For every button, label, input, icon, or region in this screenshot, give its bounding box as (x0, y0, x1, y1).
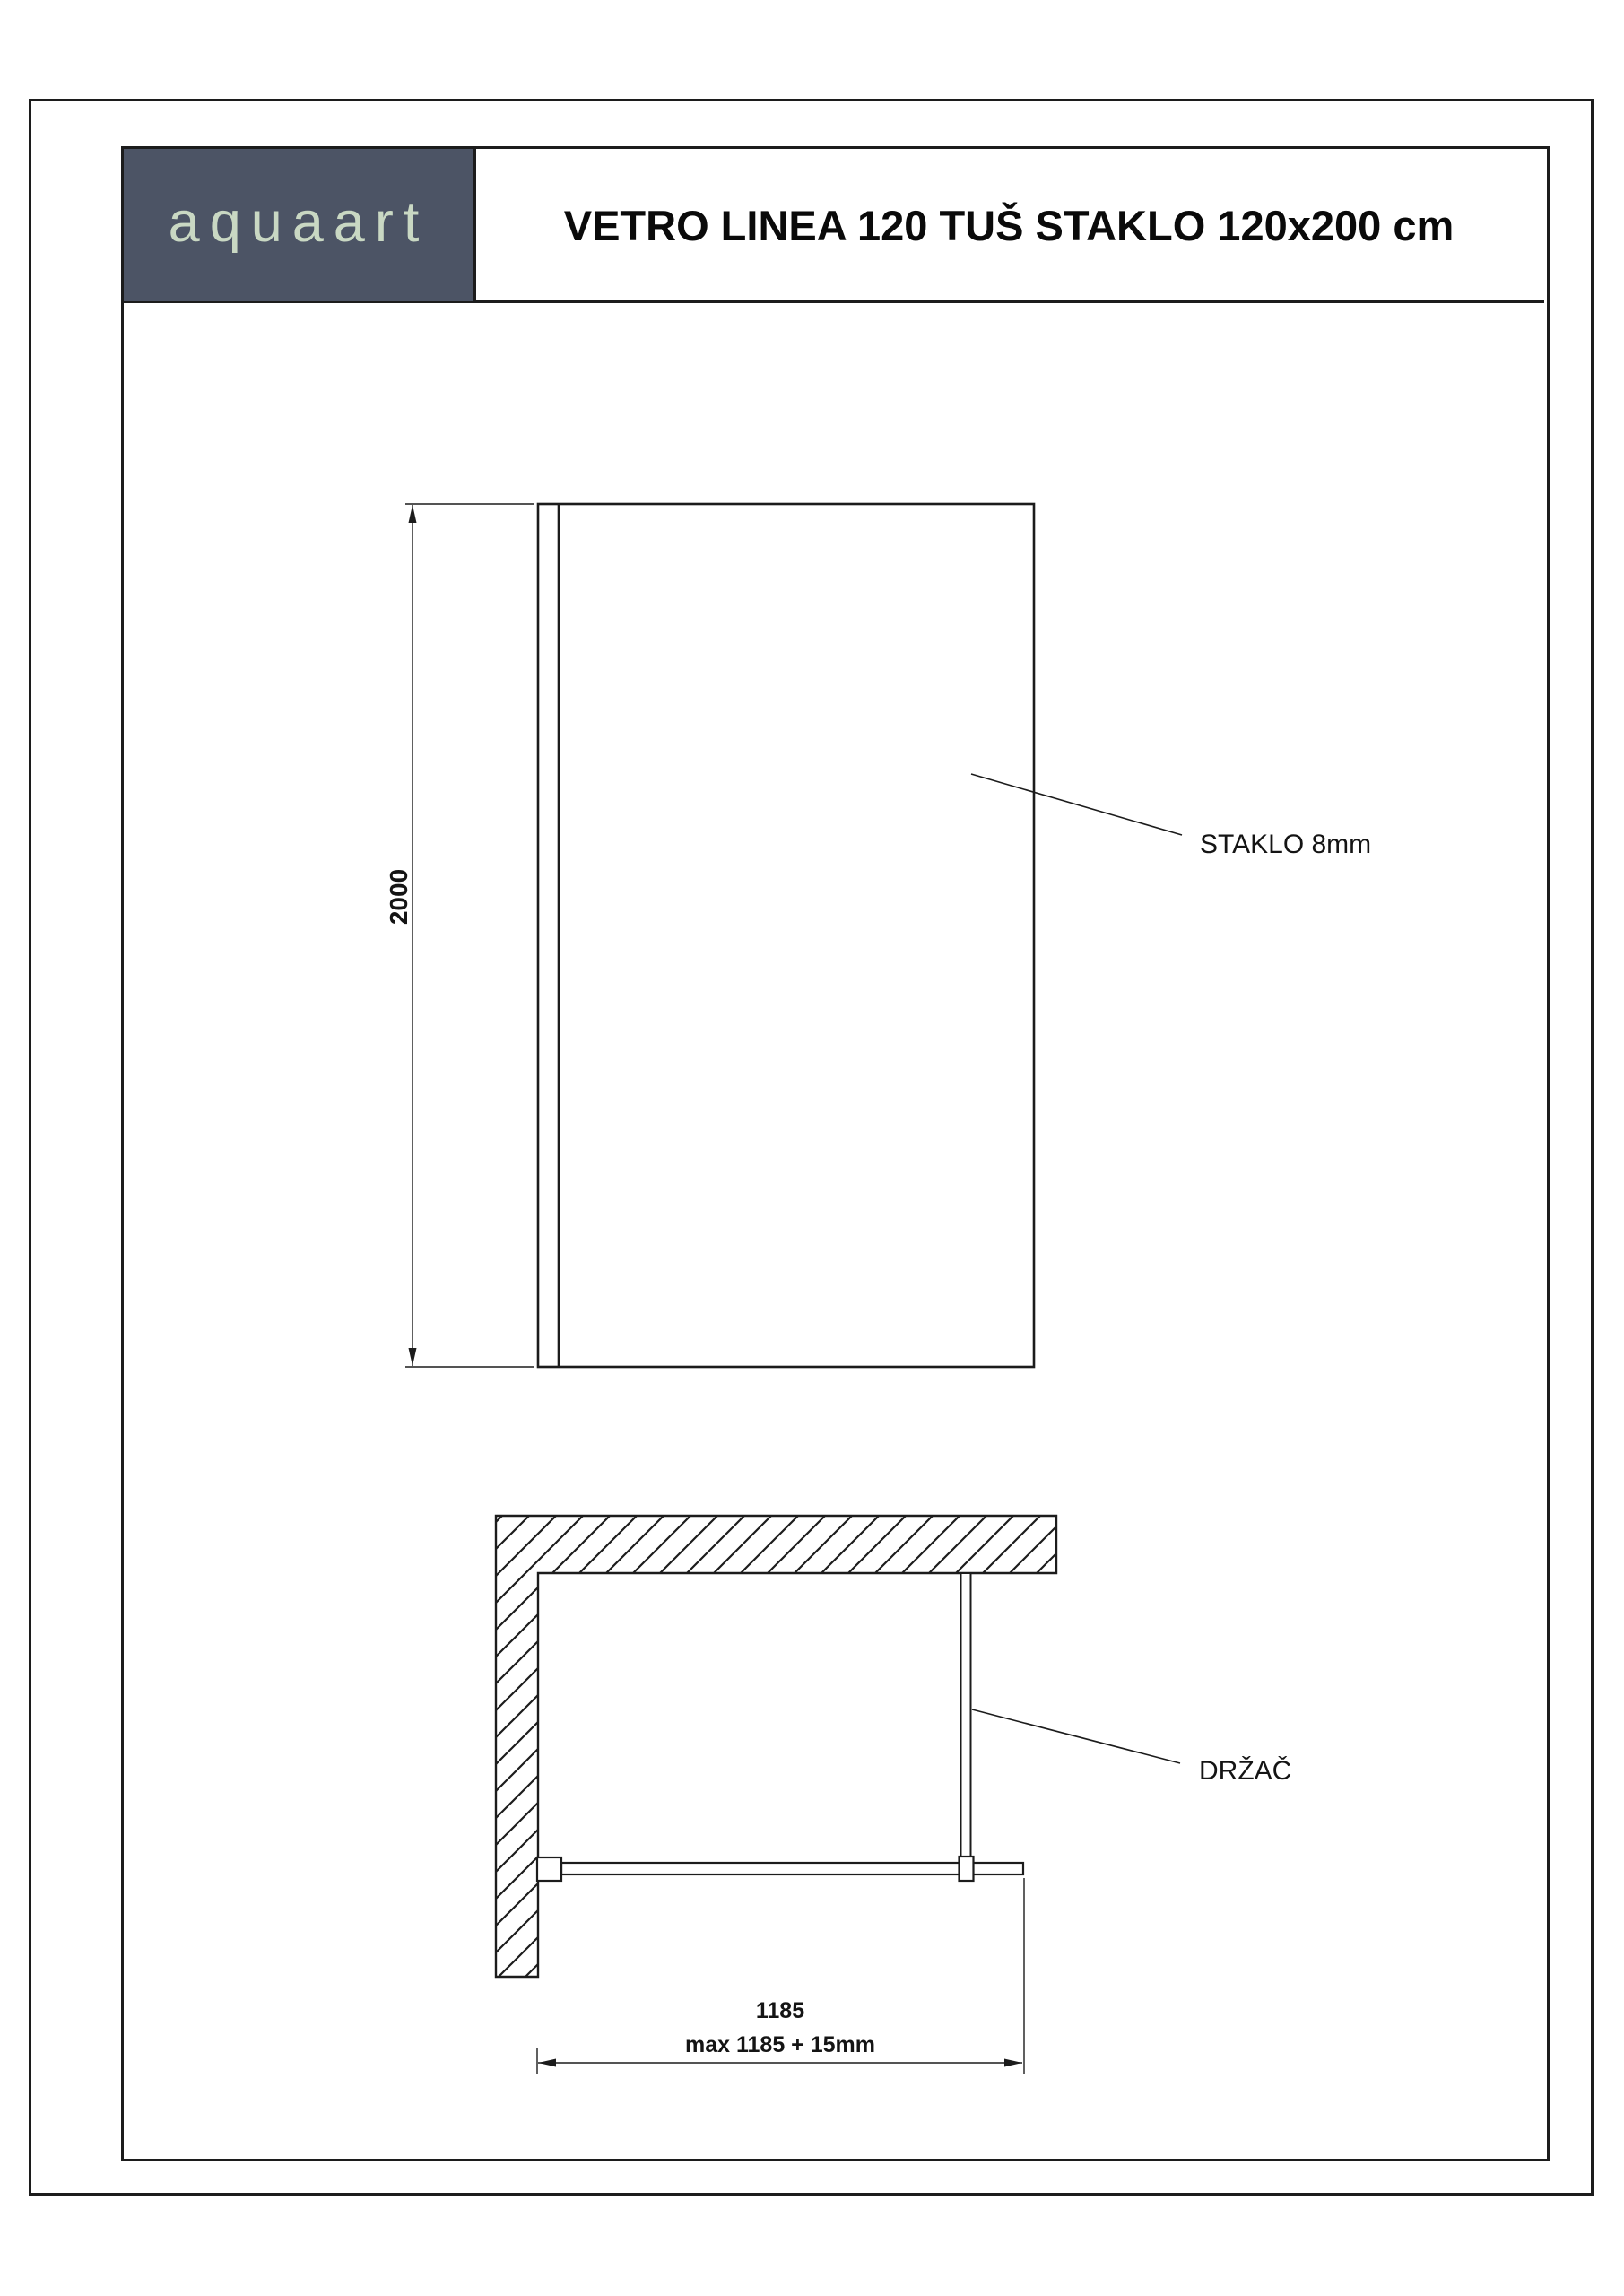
wall-section-hatched (496, 1516, 1056, 1977)
glass-panel-plan (561, 1863, 1023, 1874)
front-view (405, 504, 1182, 1367)
holder-bar-plan (961, 1573, 971, 1863)
height-dim-arrow-up (409, 505, 417, 523)
cad-drawing (0, 0, 1624, 2296)
height-dimension-label: 2000 (385, 869, 413, 925)
glass-panel-outline (538, 504, 1034, 1367)
width-dim-arrow-right (1004, 2059, 1022, 2067)
holder-bracket-plan (960, 1857, 974, 1881)
drawing-sheet: aquaart VETRO LINEA 120 TUŠ STAKLO 120x2… (0, 0, 1624, 2296)
height-dim-arrow-down (409, 1348, 417, 1366)
width-dim-arrow-left (538, 2059, 556, 2067)
holder-label: DRŽAČ (1199, 1756, 1291, 1787)
holder-leader-line (972, 1709, 1180, 1763)
glass-label: STAKLO 8mm (1200, 830, 1371, 860)
width-dimension-label: 1185 (690, 1998, 870, 2024)
wall-bracket-plan (537, 1857, 561, 1881)
width-max-dimension-label: max 1185 + 15mm (623, 2032, 937, 2058)
top-view (496, 1516, 1180, 2074)
